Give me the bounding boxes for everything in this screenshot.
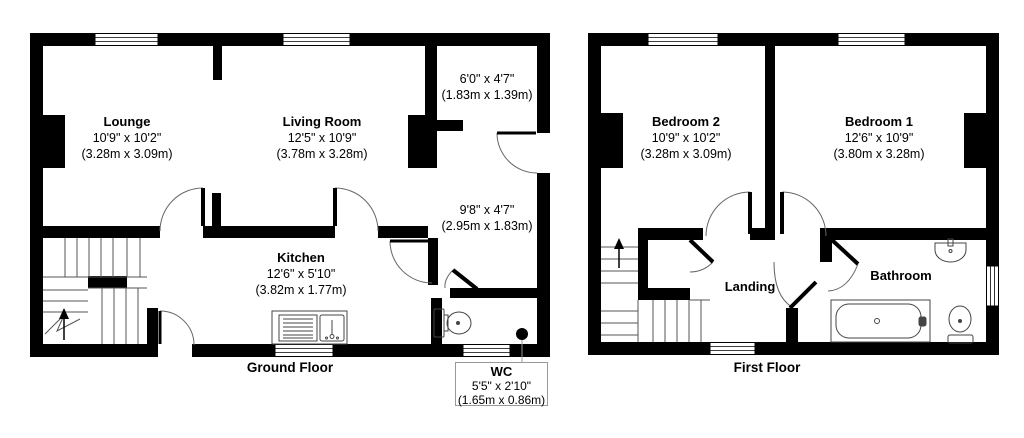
first-floor-stairs-up-arrow — [614, 238, 624, 268]
kitchen-sink-unit — [272, 311, 347, 344]
room-label-lounge: Lounge 10'9" x 10'2" (3.28m x 3.09m) — [81, 114, 172, 162]
first-floor-caption: First Floor — [734, 360, 801, 375]
room-label-living-room: Living Room 12'5" x 10'9" (3.78m x 3.28m… — [276, 114, 367, 162]
floorplan-canvas: Lounge 10'9" x 10'2" (3.28m x 3.09m) Liv… — [0, 0, 1024, 438]
room-label-kitchen: Kitchen 12'6" x 5'10" (3.82m x 1.77m) — [255, 250, 346, 298]
first-floor-window-panes — [648, 38, 995, 351]
room-label-hallway: 9'8" x 4'7" (2.95m x 1.83m) — [441, 202, 532, 234]
room-label-entrance: 6'0" x 4'7" (1.83m x 1.39m) — [441, 71, 532, 103]
bathroom-toilet — [948, 306, 973, 343]
first-floor-plan — [588, 33, 999, 355]
ground-floor-staircase — [43, 238, 147, 344]
room-label-bedroom1: Bedroom 1 12'6" x 10'9" (3.80m x 3.28m) — [833, 114, 924, 162]
wc-label-box: WC 5'5" x 2'10" (1.65m x 0.86m) — [455, 362, 548, 406]
room-label-bedroom2: Bedroom 2 10'9" x 10'2" (3.28m x 3.09m) — [640, 114, 731, 162]
room-label-bathroom: Bathroom — [870, 268, 931, 284]
bathroom-sink — [935, 239, 966, 262]
bathtub — [831, 300, 930, 342]
wc-marker-dot — [516, 328, 528, 340]
ground-floor-doors — [160, 133, 537, 345]
ground-floor-caption: Ground Floor — [247, 360, 333, 375]
room-label-landing: Landing — [725, 279, 776, 295]
